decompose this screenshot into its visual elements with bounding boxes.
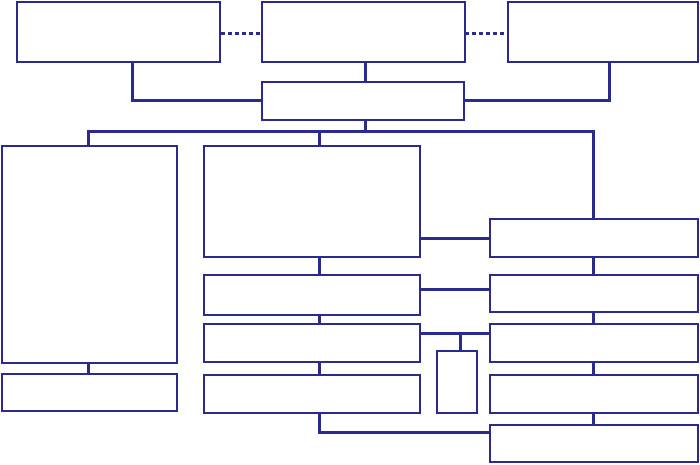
box-top-center	[261, 1, 466, 63]
conn-center1-right	[419, 237, 491, 240]
conn-trunk	[87, 130, 595, 133]
conn-center1-down	[318, 256, 321, 276]
box-right-4	[489, 374, 699, 414]
box-right-1	[489, 218, 699, 258]
box-left-tall	[1, 145, 178, 364]
conn-topright-down	[608, 61, 611, 102]
box-right-3	[489, 323, 699, 363]
box-center-3	[203, 323, 421, 363]
box-small-vertical	[436, 350, 478, 414]
conn-center3-right	[419, 332, 491, 335]
conn-center4-elbow	[318, 431, 491, 434]
box-top-right	[507, 1, 699, 63]
conn-center2-right	[419, 288, 491, 291]
conn-right1-down	[592, 256, 595, 276]
conn-topleft-down	[131, 61, 134, 102]
box-right-2	[489, 274, 699, 313]
conn-trunk-right-down	[592, 130, 595, 220]
conn-smallbox-down	[459, 332, 462, 352]
conn-topleft-elbow	[131, 99, 264, 102]
conn-dash-left	[221, 32, 262, 35]
conn-topright-elbow	[463, 99, 611, 102]
box-center-4	[203, 374, 421, 414]
box-left-bottom	[1, 373, 178, 412]
box-center-2	[203, 274, 421, 316]
conn-topcenter-down	[364, 61, 367, 83]
box-center-large	[203, 145, 421, 258]
box-right-5	[489, 424, 699, 463]
conn-dash-right	[465, 32, 508, 35]
diagram-canvas	[0, 0, 700, 465]
box-hub	[261, 81, 465, 121]
box-top-left	[16, 1, 221, 63]
